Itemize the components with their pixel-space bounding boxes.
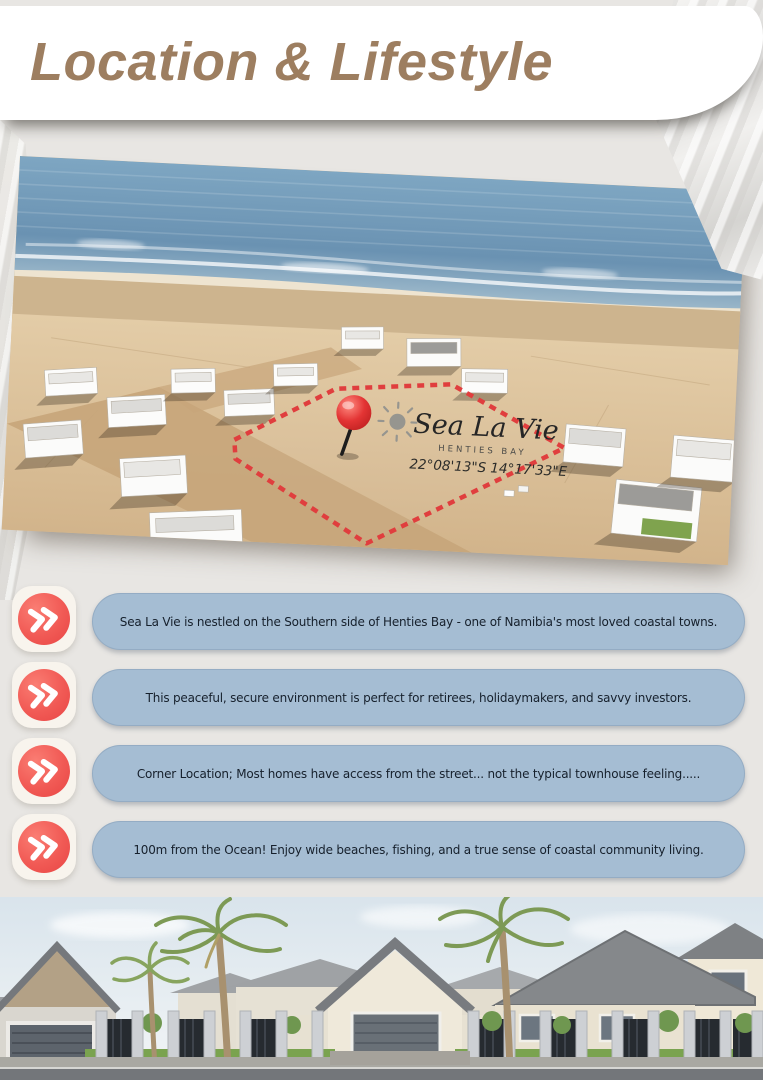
aerial-photo: Sea La Vie HENTIES BAY 22°08'13"S 14°17'… [2,156,746,565]
bullet-row: Corner Location; Most homes have access … [0,738,763,808]
bullet-row: This peaceful, secure environment is per… [0,662,763,732]
bullet-text: Sea La Vie is nestled on the Southern si… [120,615,717,629]
chevron-badge [12,662,76,728]
bullet-pill: Corner Location; Most homes have access … [92,745,745,802]
bullet-pill: Sea La Vie is nestled on the Southern si… [92,593,745,650]
page-title: Location & Lifestyle [0,6,763,118]
bullet-text: 100m from the Ocean! Enjoy wide beaches,… [133,843,703,857]
double-chevron-right-icon [18,669,70,721]
header-banner: Location & Lifestyle [0,6,763,120]
chevron-badge [12,586,76,652]
chevron-badge [12,738,76,804]
double-chevron-right-icon [18,821,70,873]
bullet-pill: 100m from the Ocean! Enjoy wide beaches,… [92,821,745,878]
double-chevron-right-icon [18,593,70,645]
chevron-badge [12,814,76,880]
double-chevron-right-icon [18,745,70,797]
sun-icon [378,402,418,442]
street-render-image [0,897,763,1080]
bullet-text: Corner Location; Most homes have access … [137,767,700,781]
bullet-row: 100m from the Ocean! Enjoy wide beaches,… [0,814,763,884]
bullet-text: This peaceful, secure environment is per… [146,691,692,705]
bullet-row: Sea La Vie is nestled on the Southern si… [0,586,763,656]
bullet-pill: This peaceful, secure environment is per… [92,669,745,726]
